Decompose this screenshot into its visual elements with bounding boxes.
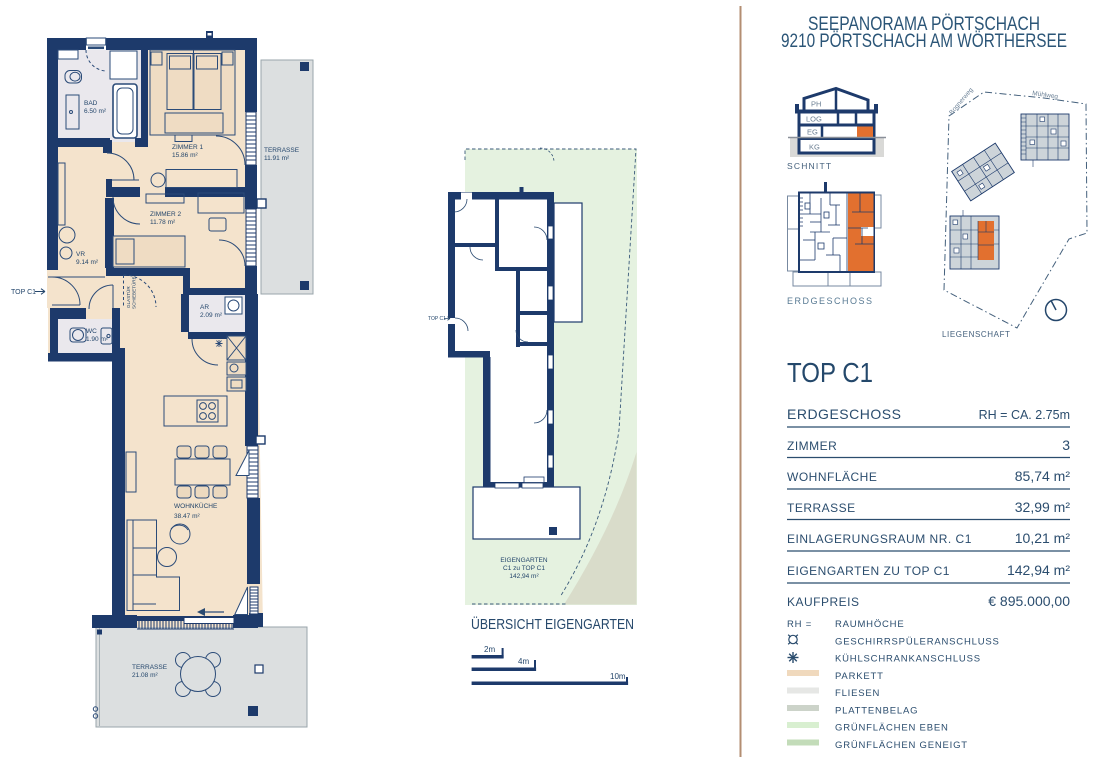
svg-text:TERRASSE: TERRASSE	[787, 501, 856, 515]
svg-text:ZIMMER 1: ZIMMER 1	[172, 144, 203, 151]
svg-text:Bognerweg: Bognerweg	[948, 86, 975, 116]
svg-text:10,21 m²: 10,21 m²	[1015, 530, 1071, 546]
svg-text:3: 3	[1062, 437, 1070, 453]
svg-text:21.08 m²: 21.08 m²	[132, 672, 158, 679]
svg-text:TOP C1: TOP C1	[11, 289, 36, 296]
svg-text:SCHNITT: SCHNITT	[787, 161, 832, 171]
svg-text:ERDGESCHOSS: ERDGESCHOSS	[787, 406, 901, 422]
svg-text:SCHIEBETÜRE: SCHIEBETÜRE	[131, 276, 137, 309]
svg-text:TERRASSE: TERRASSE	[264, 147, 300, 154]
svg-text:KG: KG	[809, 143, 820, 152]
svg-text:2m: 2m	[484, 645, 495, 654]
svg-text:AR: AR	[200, 304, 209, 311]
svg-text:WC: WC	[86, 328, 97, 335]
svg-text:EIGENGARTEN ZU TOP C1: EIGENGARTEN ZU TOP C1	[787, 564, 950, 578]
svg-text:WOHNKÜCHE: WOHNKÜCHE	[174, 502, 218, 510]
svg-text:ERDGESCHOSS: ERDGESCHOSS	[787, 296, 874, 306]
svg-text:FLIESEN: FLIESEN	[835, 688, 880, 699]
svg-text:15.86 m²: 15.86 m²	[172, 152, 198, 159]
svg-text:LOG: LOG	[806, 115, 822, 124]
svg-text:PLATTENBELAG: PLATTENBELAG	[835, 706, 918, 717]
svg-text:VR: VR	[76, 251, 85, 258]
svg-text:142,94 m²: 142,94 m²	[509, 573, 539, 580]
svg-text:RH =: RH =	[787, 619, 812, 630]
svg-text:1.90 m²: 1.90 m²	[86, 336, 109, 343]
svg-text:Mühlweg: Mühlweg	[1032, 90, 1059, 101]
svg-text:PARKETT: PARKETT	[835, 671, 884, 682]
svg-text:BAD: BAD	[84, 100, 98, 107]
svg-text:38.47 m²: 38.47 m²	[174, 513, 200, 520]
svg-text:2.09 m²: 2.09 m²	[200, 312, 223, 319]
svg-text:11.78 m²: 11.78 m²	[150, 219, 176, 226]
svg-text:TOP C1: TOP C1	[787, 357, 873, 388]
svg-text:11.91 m²: 11.91 m²	[264, 155, 290, 162]
svg-text:€ 895.000,00: € 895.000,00	[988, 593, 1070, 609]
svg-text:KAUFPREIS: KAUFPREIS	[787, 595, 860, 609]
svg-text:PH: PH	[811, 100, 821, 109]
svg-text:9210 PÖRTSCHACH AM WÖRTHERSEE: 9210 PÖRTSCHACH AM WÖRTHERSEE	[781, 31, 1067, 52]
svg-text:142,94 m²: 142,94 m²	[1007, 562, 1070, 578]
svg-text:GRÜNFLÄCHEN GENEIGT: GRÜNFLÄCHEN GENEIGT	[835, 740, 968, 751]
svg-text:C1 zu TOP C1: C1 zu TOP C1	[503, 565, 545, 572]
svg-text:TERRASSE: TERRASSE	[132, 664, 168, 671]
svg-text:4m: 4m	[518, 657, 529, 666]
svg-text:9.14 m²: 9.14 m²	[76, 259, 99, 266]
svg-text:RH = CA. 2.75m: RH = CA. 2.75m	[979, 408, 1070, 422]
svg-text:GESCHIRRSPÜLERANSCHLUSS: GESCHIRRSPÜLERANSCHLUSS	[835, 637, 1000, 648]
svg-text:32,99 m²: 32,99 m²	[1015, 499, 1071, 515]
svg-text:LIEGENSCHAFT: LIEGENSCHAFT	[942, 330, 1011, 339]
svg-text:KÜHLSCHRANKANSCHLUSS: KÜHLSCHRANKANSCHLUSS	[835, 654, 981, 665]
svg-text:RAUMHÖCHE: RAUMHÖCHE	[835, 619, 904, 630]
svg-text:EG: EG	[807, 128, 818, 137]
svg-text:85,74 m²: 85,74 m²	[1015, 468, 1071, 484]
svg-text:6.50 m²: 6.50 m²	[84, 108, 107, 115]
svg-text:EINLAGERUNGSRAUM NR. C1: EINLAGERUNGSRAUM NR. C1	[787, 532, 972, 546]
svg-text:10m: 10m	[610, 672, 626, 681]
svg-text:ZIMMER: ZIMMER	[787, 439, 837, 453]
svg-text:GRÜNFLÄCHEN EBEN: GRÜNFLÄCHEN EBEN	[835, 723, 949, 734]
svg-text:WOHNFLÄCHE: WOHNFLÄCHE	[787, 470, 877, 484]
svg-text:GLASTÜR: GLASTÜR	[125, 286, 131, 308]
svg-text:EIGENGARTEN: EIGENGARTEN	[500, 557, 548, 564]
svg-text:TOP C1: TOP C1	[428, 316, 446, 322]
svg-text:ÜBERSICHT EIGENGARTEN: ÜBERSICHT EIGENGARTEN	[471, 615, 634, 633]
svg-text:ZIMMER 2: ZIMMER 2	[150, 211, 181, 218]
